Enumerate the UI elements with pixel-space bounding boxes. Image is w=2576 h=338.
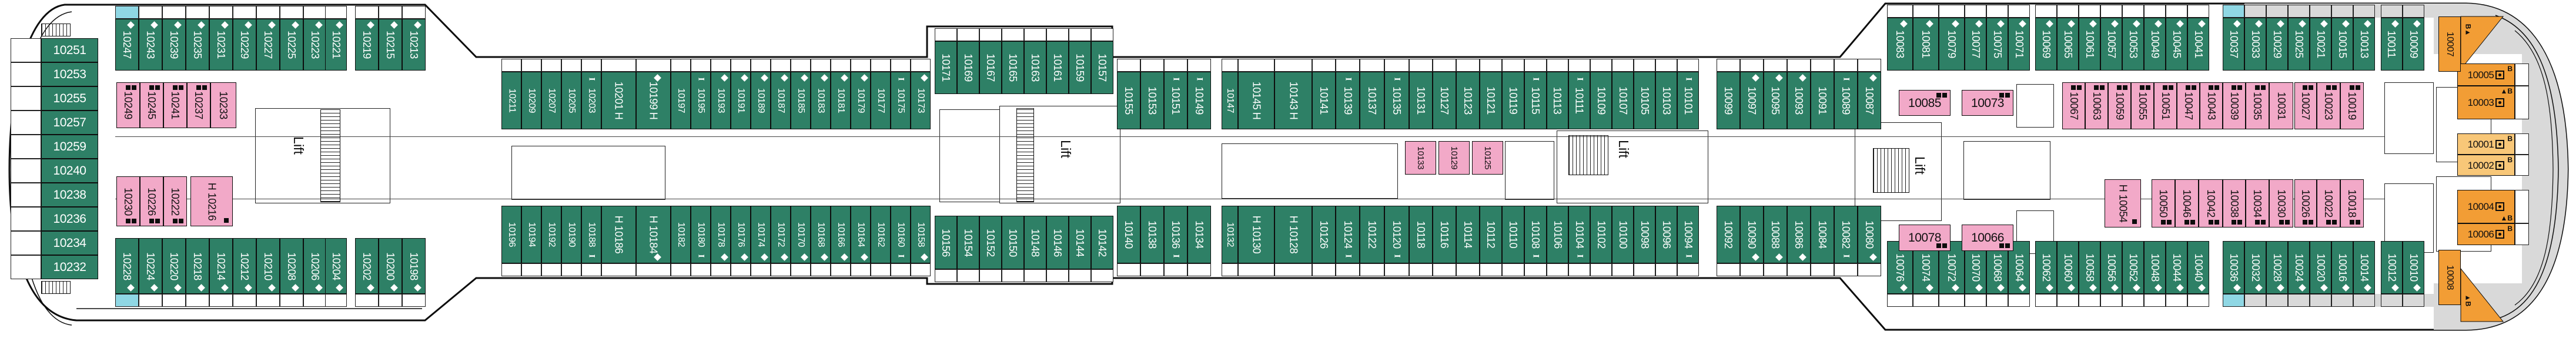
circle-in-square-icon — [2495, 202, 2504, 211]
balcony-cell — [2166, 5, 2187, 18]
circle-in-square-icon — [2495, 230, 2504, 239]
balcony-cell — [601, 263, 636, 276]
cabin-10091: 10091 — [1811, 72, 1834, 129]
sofa-bed-icon: I — [1172, 78, 1180, 81]
cabin-10036: 10036 — [2223, 241, 2244, 294]
diamond-icon — [2299, 284, 2306, 292]
balcony-cell — [2403, 294, 2424, 307]
square-glyph — [2132, 219, 2137, 224]
diamond-icon — [2413, 20, 2421, 28]
cabin-number: 10148 — [1030, 229, 1041, 257]
balcony-cell — [671, 59, 691, 72]
cabin-10224: 10224 — [139, 238, 162, 294]
cabin-number: 10168 — [816, 222, 825, 247]
balcony-cell — [1222, 263, 1238, 276]
diamond-icon — [2255, 20, 2263, 28]
cabin-number: 10219 — [362, 31, 372, 59]
cabin-number: 10228 — [122, 252, 132, 280]
diamond-icon — [127, 284, 135, 292]
two-squares-icon — [2255, 220, 2266, 225]
cabin-number: 10061 — [2085, 30, 2095, 58]
balcony-cell — [581, 263, 601, 276]
two-squares-icon — [149, 85, 160, 90]
balcony-cell — [402, 294, 426, 307]
cabin-10095: 10095 — [1764, 72, 1787, 129]
deck-plan: 1024710243102391023510231102291022710225… — [0, 0, 2576, 338]
cabin-10168: 10168 — [811, 206, 831, 263]
balcony-cell — [11, 207, 41, 231]
cabin-10203: 10203I — [581, 72, 601, 129]
diamond-icon — [1752, 253, 1759, 261]
cabin-10145: 10145 H — [1238, 72, 1274, 129]
balcony-cell — [1433, 263, 1456, 276]
square-glyph — [2303, 85, 2307, 90]
cabin-10128: H 10128 — [1274, 206, 1312, 263]
cabin-10043: 10043 — [2200, 82, 2223, 129]
balcony-cell — [979, 269, 1002, 282]
balcony-cell — [139, 6, 162, 19]
cabin-number: 10134 — [1194, 220, 1205, 249]
cabin-10235: 10235 — [186, 19, 209, 71]
cabin-number: 10209 — [527, 88, 536, 113]
square-glyph — [2279, 220, 2284, 225]
square-glyph — [2350, 220, 2354, 225]
cabin-10004: 10004▲B — [2457, 190, 2515, 223]
cabin-10215: 10215 — [379, 19, 402, 71]
diamond-icon — [841, 74, 848, 82]
two-squares-icon — [2303, 85, 2313, 90]
balcony-cell — [1787, 59, 1811, 72]
diamond-icon — [821, 253, 828, 261]
square-glyph — [155, 85, 160, 90]
cabin-10174: 10174 — [751, 206, 771, 263]
diamond-icon — [841, 253, 848, 261]
balcony-cell — [1568, 263, 1590, 276]
balcony-cell — [11, 159, 41, 183]
cabin-number: 10179 — [856, 88, 865, 113]
cabin-number: 10187 — [776, 88, 785, 113]
balcony-cell — [162, 6, 186, 19]
cabin-10234: 10234 — [41, 231, 98, 255]
cabin-10029: 10029 — [2266, 18, 2288, 71]
stairs-icon — [41, 24, 71, 36]
cabin-10216: H 10216 — [190, 176, 233, 226]
cabin-10097: 10097 — [1740, 72, 1764, 129]
cabin-number: 10030 — [2276, 189, 2287, 217]
balcony-cell — [731, 59, 751, 72]
balcony-cell — [303, 294, 327, 307]
cabin-number: 10108 — [1530, 220, 1541, 249]
stairs-icon — [1568, 135, 1608, 175]
balcony-cell — [791, 263, 811, 276]
cabin-number: 10116 — [1439, 221, 1450, 248]
cabin-10088: 10088 — [1764, 206, 1787, 263]
balcony-cell — [2223, 5, 2244, 18]
cabin-number: 10124 — [1343, 220, 1353, 249]
balcony-cell — [561, 59, 581, 72]
diamond-icon — [336, 284, 343, 292]
diamond-icon — [1775, 74, 1783, 82]
cabin-10127: 10127 — [1433, 72, 1456, 129]
cabin-10185: 10185 — [791, 72, 811, 129]
balcony-cell — [2288, 5, 2310, 18]
cabin-10098: 10098 — [1634, 206, 1655, 263]
cabin-number: 10137 — [1367, 86, 1377, 115]
cabin-number: 10204 — [331, 252, 342, 280]
lift-label: Lift — [1058, 140, 1073, 158]
cabin-number: 10159 — [1075, 53, 1085, 82]
room-outline — [1222, 143, 1398, 199]
cabin-10052: 10052 — [2122, 241, 2144, 294]
cabin-number: 10176 — [736, 222, 745, 247]
two-squares-icon — [2279, 220, 2290, 225]
cabin-10101: 10101I — [1677, 72, 1699, 129]
cabin-number: 10174 — [756, 222, 765, 247]
square-glyph — [2326, 85, 2331, 90]
cabin-10157: 10157 — [1091, 41, 1113, 94]
cabin-number: 10043 — [2206, 92, 2217, 120]
cabin-number: 10120 — [1391, 220, 1402, 249]
cabin-number: 10238 — [53, 189, 86, 201]
cabin-number: 10001 — [2468, 139, 2494, 149]
balcony-cell — [2008, 294, 2030, 307]
diamond-icon — [801, 253, 808, 261]
balcony-cell — [1384, 263, 1409, 276]
cabin-number: 10185 — [796, 88, 805, 113]
sofa-bed-icon: I — [587, 78, 596, 81]
diamond-icon — [2111, 20, 2119, 28]
two-squares-icon — [173, 219, 183, 223]
diamond-icon — [150, 284, 158, 292]
cabin-10077: 10077 — [1965, 18, 1986, 71]
cabin-number: 10169 — [963, 53, 973, 82]
cabin-number: 10114 — [1463, 221, 1473, 248]
cabin-10009: 10009 — [2403, 18, 2424, 71]
cabin-number: 10154 — [963, 229, 973, 257]
cabin-number: 10098 — [1640, 220, 1650, 249]
cabin-10020: 10020 — [2310, 241, 2331, 294]
cabin-10018: 10018 — [2340, 179, 2364, 227]
room-outline — [1505, 141, 1554, 200]
sofa-bed-icon: I — [1575, 78, 1584, 81]
cabin-number: 10091 — [1817, 86, 1828, 115]
diamond-icon — [2176, 284, 2184, 292]
cabin-10221: 10221 — [325, 19, 347, 71]
cabin-10163: 10163 — [1024, 41, 1046, 94]
cabin-10222: 10222 — [163, 176, 187, 226]
cabin-number: 10223 — [310, 31, 320, 59]
balcony-cell — [162, 294, 186, 307]
cabin-number: 10102 — [1596, 220, 1607, 249]
diamond-icon — [245, 21, 252, 29]
cabin-10225: 10225 — [280, 19, 303, 71]
cabin-number: 10257 — [53, 116, 86, 129]
diamond-icon — [2342, 284, 2350, 292]
cabin-number: 10152 — [985, 229, 996, 257]
balcony-cell — [1456, 263, 1480, 276]
balcony-cell — [233, 294, 256, 307]
balcony-cell — [2515, 155, 2529, 176]
one-square-icon — [224, 218, 229, 223]
balcony-cell — [2353, 5, 2375, 18]
balcony-cell — [1568, 59, 1590, 72]
balcony-cell — [2515, 223, 2529, 245]
balcony-cell — [811, 263, 831, 276]
balcony-cell — [935, 269, 957, 282]
square-glyph — [179, 85, 183, 90]
cabin-10251: 10251 — [41, 38, 98, 62]
cabin-10031: 10031 — [2269, 82, 2293, 129]
diamond-icon — [1926, 20, 1933, 28]
cabin-10115: 10115I — [1524, 72, 1547, 129]
cabin-number: 10196 — [507, 222, 516, 247]
balcony-cell — [2187, 5, 2209, 18]
cabin-10050: 10050 — [2152, 179, 2175, 227]
diamond-icon — [414, 284, 421, 292]
cabin-number: 10173 — [916, 88, 925, 113]
cabin-10178: 10178 — [711, 206, 731, 263]
balcony-cell — [711, 263, 731, 276]
cabin-10184: H 10184 — [636, 206, 671, 263]
diamond-icon — [2068, 20, 2075, 28]
cabin-10172: 10172 — [771, 206, 791, 263]
balcony-cell — [1590, 59, 1612, 72]
balcony-cell — [2244, 294, 2266, 307]
diamond-icon — [2111, 284, 2119, 292]
cabin-10147: 10147 — [1222, 72, 1238, 129]
balcony-cell — [1024, 28, 1046, 41]
cabin-number: 10178 — [716, 222, 725, 247]
square-glyph — [2332, 220, 2337, 225]
square-glyph — [2214, 220, 2219, 225]
balcony-cell — [1811, 59, 1834, 72]
cabin-10158: 10158 — [911, 206, 931, 263]
balcony-cell — [601, 59, 636, 72]
cabin-10053: 10053 — [2122, 18, 2144, 71]
cabin-10121: 10121 — [1480, 72, 1502, 129]
cabin-10196: 10196 — [501, 206, 521, 263]
cabin-number: 10110 — [1508, 221, 1518, 248]
cabin-10090: 10090 — [1740, 206, 1764, 263]
cabin-10065: 10065 — [2057, 18, 2079, 71]
cabin-10033: 10033 — [2244, 18, 2266, 71]
cabin-10049: 10049 — [2144, 18, 2166, 71]
cabin-number: 10013 — [2359, 30, 2370, 58]
cabin-number: 10193 — [716, 88, 725, 113]
cabin-number: 10063 — [2092, 92, 2102, 120]
square-glyph — [2350, 85, 2354, 90]
sofa-bed-icon: I — [896, 255, 905, 258]
cabin-number: 10210 — [263, 252, 273, 280]
cabin-number: 10237 — [193, 91, 204, 119]
diamond-icon — [1869, 253, 1877, 261]
cabin-number: 10058 — [2085, 253, 2095, 282]
sofa-bed-icon: I — [1343, 255, 1352, 258]
balcony-cell — [1456, 59, 1480, 72]
cabin-number: 10008 — [2445, 265, 2454, 290]
balcony-cell — [1524, 59, 1547, 72]
balcony-cell — [871, 59, 891, 72]
diamond-icon — [2019, 284, 2026, 292]
circle-in-square-icon — [2495, 98, 2504, 107]
cabin-10120: 10120I — [1384, 206, 1409, 263]
balcony-cell — [851, 59, 871, 72]
two-squares-icon — [2350, 220, 2360, 225]
cabin-10139: 10139I — [1336, 72, 1360, 129]
cabin-10081: 10081 — [1913, 18, 1939, 71]
cabin-number: 10023 — [2323, 92, 2334, 120]
square-glyph — [2100, 85, 2105, 90]
balcony-cell — [11, 86, 41, 111]
balcony-cell — [2079, 294, 2100, 307]
cabin-10153: 10153 — [1140, 72, 1164, 129]
balcony-cell — [911, 59, 931, 72]
two-squares-icon — [2303, 220, 2313, 225]
diamond-icon — [268, 284, 276, 292]
cabin-10154: 10154 — [957, 216, 979, 269]
cabin-number: 10101 — [1683, 86, 1694, 115]
cabin-number: 10105 — [1640, 86, 1650, 115]
balcony-cell — [1590, 263, 1612, 276]
square-glyph — [2309, 85, 2313, 90]
balcony-cell — [1046, 28, 1069, 41]
cabin-number: 10199 H — [648, 82, 659, 120]
diamond-icon — [2133, 284, 2140, 292]
cabin-number: 10149 — [1194, 86, 1205, 115]
balcony-cell — [2122, 294, 2144, 307]
cabin-number: 10109 — [1596, 86, 1607, 115]
square-glyph — [2005, 243, 2010, 248]
cabin-10059: 10059 — [2108, 82, 2131, 129]
diamond-icon — [2155, 20, 2162, 28]
cabin-10108: 10108I — [1524, 206, 1547, 263]
cabin-number: 10051 — [2160, 92, 2171, 120]
diamond-icon — [861, 253, 868, 261]
balcony-cell — [957, 269, 979, 282]
cabin-number: 10177 — [876, 88, 885, 113]
square-glyph — [2186, 85, 2190, 90]
cabin-number: H 10054 — [2117, 185, 2128, 223]
cabin-number: 10206 — [310, 252, 320, 280]
cabin-number: 10215 — [385, 31, 396, 59]
cabin-number: 10060 — [2063, 253, 2073, 282]
cabin-10037: 10037 — [2223, 18, 2244, 71]
balcony-cell — [256, 294, 280, 307]
balcony-cell — [1834, 59, 1858, 72]
cabin-number: 10078 — [1908, 232, 1941, 244]
two-squares-icon — [1936, 243, 1947, 248]
cabin-10119: 10119 — [1502, 72, 1524, 129]
cabin-number: 10112 — [1486, 221, 1496, 248]
cabin-10067: 10067 — [2062, 82, 2085, 129]
balcony-cell — [2035, 294, 2057, 307]
diamond-icon — [1799, 74, 1806, 82]
diamond-icon — [221, 284, 229, 292]
cabin-10084: 10084 — [1811, 206, 1834, 263]
balcony-cell — [1740, 263, 1764, 276]
cabin-10226: 10226 — [140, 176, 163, 226]
balcony-cell — [1274, 59, 1312, 72]
cabin-10183: 10183 — [811, 72, 831, 129]
sofa-bed-icon: I — [1343, 78, 1352, 81]
corridor-line — [115, 136, 2384, 137]
balcony-cell — [891, 59, 911, 72]
cabin-10103: 10103 — [1655, 72, 1677, 129]
sofa-bed-icon: I — [1684, 78, 1692, 81]
cabin-number: 10038 — [2229, 189, 2240, 217]
cabin-number: 10115 — [1530, 87, 1541, 114]
cabin-10093: 10093 — [1787, 72, 1811, 129]
cabin-number: 10040 — [2193, 253, 2204, 282]
cabin-number: 10181 — [836, 88, 845, 113]
balcony-cell — [1677, 59, 1699, 72]
cabin-number: 10194 — [527, 222, 536, 247]
cabin-number: 10230 — [123, 188, 133, 216]
cabin-10152: 10152 — [979, 216, 1002, 269]
diamond-icon — [268, 21, 276, 29]
cabin-10211: 10211 — [501, 72, 521, 129]
cabin-number: 10012 — [2387, 253, 2397, 282]
cabin-10116: 10116 — [1433, 206, 1456, 263]
diamond-icon — [741, 74, 748, 82]
diamond-icon — [921, 253, 928, 261]
cabin-10007: 10007 — [2438, 16, 2461, 72]
cabin-number: 10005 — [2468, 70, 2494, 80]
balcony-cell — [521, 59, 541, 72]
square-glyph — [173, 219, 178, 223]
balcony-cell — [1634, 263, 1655, 276]
square-glyph — [2209, 220, 2213, 225]
stairs-icon — [320, 109, 340, 202]
cabin-10135: 10135I — [1384, 72, 1409, 129]
cabin-number: 10231 — [216, 31, 226, 59]
cabin-10138: 10138 — [1140, 206, 1164, 263]
cabin-number: 10171 — [941, 53, 951, 82]
cabin-10089: 10089I — [1834, 72, 1858, 129]
cabin-number: 10014 — [2359, 253, 2370, 282]
cabin-10177: 10177 — [871, 72, 891, 129]
cabin-10044: 10044 — [2166, 241, 2187, 294]
balcony-cell — [979, 28, 1002, 41]
balcony-b-mark: ▲B — [2500, 215, 2513, 222]
cabin-number: 10088 — [1770, 220, 1781, 249]
cabin-10257: 10257 — [41, 111, 98, 135]
cabin-10125: 10125 — [1472, 141, 1503, 175]
balcony-cell — [1887, 294, 1913, 307]
cabin-10243: 10243 — [139, 19, 162, 71]
diamond-icon — [315, 21, 323, 29]
cabin-10162: 10162 — [871, 206, 891, 263]
balcony-cell — [2223, 294, 2244, 307]
cabin-number: 10016 — [2337, 253, 2348, 282]
cabin-number: 10026 — [2300, 189, 2311, 217]
balcony-cell — [1764, 263, 1787, 276]
cabin-number: 10053 — [2128, 30, 2139, 58]
square-glyph — [2237, 220, 2242, 225]
balcony-cell — [1965, 5, 1986, 18]
cabin-number: 10106 — [1553, 220, 1563, 249]
balcony-cell — [2266, 294, 2288, 307]
cabin-10142: 10142 — [1091, 216, 1113, 269]
cabin-10046: 10046 — [2175, 179, 2199, 227]
balcony-cell — [1069, 269, 1091, 282]
diamond-icon — [198, 21, 205, 29]
diamond-icon — [198, 284, 205, 292]
cabin-number: 10007 — [2445, 32, 2454, 56]
cabin-10171: 10171 — [935, 41, 957, 94]
cabin-number: 10225 — [286, 31, 297, 59]
balcony-cell — [1002, 28, 1024, 41]
